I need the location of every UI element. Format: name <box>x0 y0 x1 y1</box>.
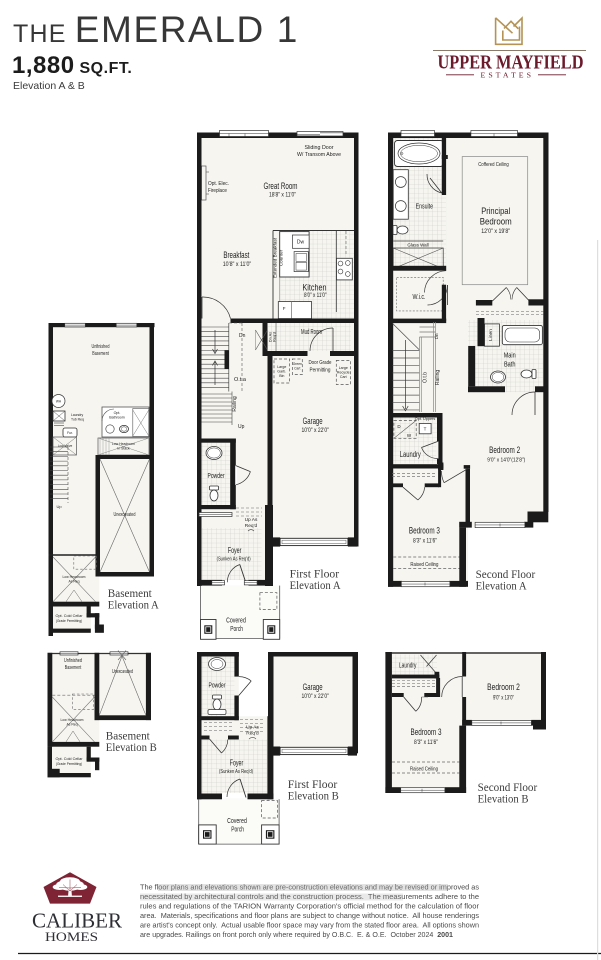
svg-text:Fur.: Fur. <box>67 431 73 435</box>
svg-text:(Grade Permitting): (Grade Permitting) <box>56 762 82 766</box>
svg-text:(Grade Permitting): (Grade Permitting) <box>56 619 82 623</box>
svg-text:Large: Large <box>277 365 286 369</box>
svg-text:Permitting: Permitting <box>310 368 331 374</box>
svg-text:WH: WH <box>56 400 62 404</box>
svg-text:Bedroom 3: Bedroom 3 <box>409 525 440 535</box>
svg-text:Elevation A: Elevation A <box>290 580 342 592</box>
svg-text:Porch: Porch <box>230 624 243 633</box>
svg-text:Bedroom 2: Bedroom 2 <box>489 445 520 455</box>
svg-text:Bathroom: Bathroom <box>109 416 125 420</box>
svg-text:Up As: Up As <box>246 725 259 731</box>
svg-text:T: T <box>424 427 427 432</box>
svg-text:Bedroom 2: Bedroom 2 <box>487 682 520 692</box>
svg-text:Basement: Basement <box>108 588 153 600</box>
svg-text:Unexcavated: Unexcavated <box>112 669 133 675</box>
svg-text:CALIBER: CALIBER <box>32 909 123 933</box>
svg-text:Railing: Railing <box>232 396 238 412</box>
svg-text:First Floor: First Floor <box>290 569 340 581</box>
svg-text:Req'd: Req'd <box>273 332 277 342</box>
svg-text:Bin: Bin <box>279 374 284 378</box>
svg-text:Up: Up <box>238 424 245 430</box>
svg-text:Unfinished: Unfinished <box>64 658 82 664</box>
svg-text:Up As: Up As <box>245 517 258 523</box>
svg-text:Bedroom: Bedroom <box>480 217 512 228</box>
svg-text:Cart: Cart <box>294 367 300 371</box>
svg-text:Recycle: Recycle <box>337 371 350 375</box>
svg-text:Porch: Porch <box>231 824 244 833</box>
svg-text:Basement: Basement <box>92 351 109 357</box>
svg-text:18'8" x 11'0": 18'8" x 11'0" <box>269 193 296 199</box>
svg-text:(Sunken As Req'd): (Sunken As Req'd) <box>217 557 251 563</box>
svg-text:Railing: Railing <box>435 370 441 386</box>
svg-text:O.t.b: O.t.b <box>423 372 429 383</box>
svg-text:12'0" x 19'8": 12'0" x 19'8" <box>481 229 510 235</box>
svg-text:First Floor: First Floor <box>288 779 338 791</box>
svg-text:Second Floor: Second Floor <box>476 569 536 581</box>
svg-text:Up: Up <box>56 504 62 509</box>
svg-text:Garb.: Garb. <box>277 370 286 374</box>
svg-text:HOMES: HOMES <box>45 930 98 944</box>
svg-text:Green: Green <box>293 362 302 366</box>
svg-text:Extended Breakfast: Extended Breakfast <box>273 237 278 278</box>
svg-text:Low Headroom: Low Headroom <box>61 718 84 722</box>
svg-text:Low Headroom: Low Headroom <box>112 442 135 446</box>
svg-text:Basement: Basement <box>106 731 151 743</box>
svg-text:Laundry: Laundry <box>71 413 84 417</box>
svg-text:Garage: Garage <box>303 416 323 427</box>
svg-text:Breakfast: Breakfast <box>223 250 249 261</box>
svg-text:Unexcavated: Unexcavated <box>114 512 136 518</box>
svg-text:Laundry: Laundry <box>400 450 421 459</box>
svg-text:Raised Ceiling: Raised Ceiling <box>410 562 438 568</box>
svg-text:rules and regulations of the T: rules and regulations of the TARION Warr… <box>140 904 480 911</box>
svg-text:Garage: Garage <box>303 682 323 693</box>
svg-text:Elevation A: Elevation A <box>108 600 160 612</box>
svg-text:Bath: Bath <box>504 362 516 369</box>
svg-text:Low Headroom: Low Headroom <box>63 575 86 579</box>
svg-text:Unfinished: Unfinished <box>92 344 110 350</box>
svg-text:10'8" x 11'0": 10'8" x 11'0" <box>223 262 252 268</box>
svg-text:Cart: Cart <box>340 375 347 379</box>
svg-text:(Sunken As Req'd): (Sunken As Req'd) <box>219 769 253 775</box>
svg-text:Opt.: Opt. <box>114 411 121 415</box>
svg-text:Opt. Cold Cellar: Opt. Cold Cellar <box>55 614 83 618</box>
svg-text:Large: Large <box>339 366 348 370</box>
svg-text:Sliding Door: Sliding Door <box>305 145 334 151</box>
svg-text:Counter: Counter <box>279 249 284 266</box>
svg-text:8'3" x 11'6": 8'3" x 11'6" <box>413 538 437 544</box>
svg-text:9'0" x 14'0"(12'8"): 9'0" x 14'0"(12'8") <box>487 458 525 464</box>
svg-text:Elevation B: Elevation B <box>288 791 339 803</box>
svg-text:Tub Req: Tub Req <box>71 418 84 422</box>
svg-text:Principal: Principal <box>481 206 510 217</box>
svg-text:Foyer: Foyer <box>230 758 244 768</box>
svg-text:As Req: As Req <box>66 723 77 727</box>
svg-text:Ensuite: Ensuite <box>416 202 433 211</box>
svg-text:As Req: As Req <box>68 580 79 584</box>
svg-text:10'0" x 22'0": 10'0" x 22'0" <box>302 694 329 700</box>
svg-text:W/ Transom Above: W/ Transom Above <box>297 152 341 158</box>
svg-text:Basement: Basement <box>65 665 82 671</box>
svg-text:Glass Wall: Glass Wall <box>407 243 428 248</box>
svg-text:area. Materials, specificatio: area. Materials, specifications and floo… <box>140 913 480 920</box>
svg-text:Bedroom 3: Bedroom 3 <box>411 727 442 737</box>
svg-text:8'3" x 11'6": 8'3" x 11'6" <box>414 740 438 746</box>
svg-text:Coffered Ceiling: Coffered Ceiling <box>478 162 509 168</box>
svg-text:Elevation A & B: Elevation A & B <box>13 80 85 92</box>
svg-text:Raised Ceiling: Raised Ceiling <box>410 767 438 773</box>
svg-text:Linen: Linen <box>488 329 494 341</box>
svg-text:are upgrades. Railings on fron: are upgrades. Railings on front porch on… <box>140 932 453 939</box>
svg-text:Door Grade: Door Grade <box>309 360 332 366</box>
svg-text:Fireplace: Fireplace <box>208 188 227 194</box>
svg-text:In Stack: In Stack <box>117 447 130 451</box>
svg-text:Dw: Dw <box>297 240 305 246</box>
svg-text:Opt. Cold Cellar: Opt. Cold Cellar <box>55 757 83 761</box>
svg-text:Foyer: Foyer <box>228 545 242 555</box>
svg-text:Opt. Uppers: Opt. Uppers <box>415 417 436 421</box>
svg-text:Req'd: Req'd <box>246 731 259 737</box>
svg-text:Great Room: Great Room <box>264 181 298 192</box>
svg-text:Elevation B: Elevation B <box>106 742 157 754</box>
svg-text:F: F <box>283 306 286 311</box>
svg-text:W.i.c.: W.i.c. <box>413 292 426 301</box>
svg-text:Powder: Powder <box>209 681 226 690</box>
svg-text:Mud Room: Mud Room <box>301 327 322 336</box>
svg-text:Req'd: Req'd <box>245 523 258 529</box>
svg-text:Laundry: Laundry <box>399 661 417 670</box>
svg-text:Dn: Dn <box>434 333 439 339</box>
svg-text:O.t.a: O.t.a <box>234 377 247 383</box>
svg-text:Dn: Dn <box>239 333 246 339</box>
svg-text:Main: Main <box>504 353 516 360</box>
svg-text:Elevation B: Elevation B <box>478 794 529 806</box>
svg-text:9'0" x 13'0": 9'0" x 13'0" <box>493 696 514 702</box>
svg-text:10'0" x 22'0": 10'0" x 22'0" <box>302 428 329 434</box>
svg-text:Second Floor: Second Floor <box>478 782 538 794</box>
svg-text:are artist's concept only. Ac: are artist's concept only. Actual usable… <box>140 923 479 930</box>
svg-text:Powder: Powder <box>208 471 225 480</box>
svg-text:Low Valve: Low Valve <box>58 444 73 448</box>
svg-text:Kitchen: Kitchen <box>303 283 327 294</box>
svg-text:Opt. Elec.: Opt. Elec. <box>208 181 229 187</box>
svg-text:Elevation A: Elevation A <box>476 581 528 593</box>
svg-text:E S T A T E S: E S T A T E S <box>481 71 532 79</box>
svg-text:8'0" x 11'0": 8'0" x 11'0" <box>304 293 327 299</box>
